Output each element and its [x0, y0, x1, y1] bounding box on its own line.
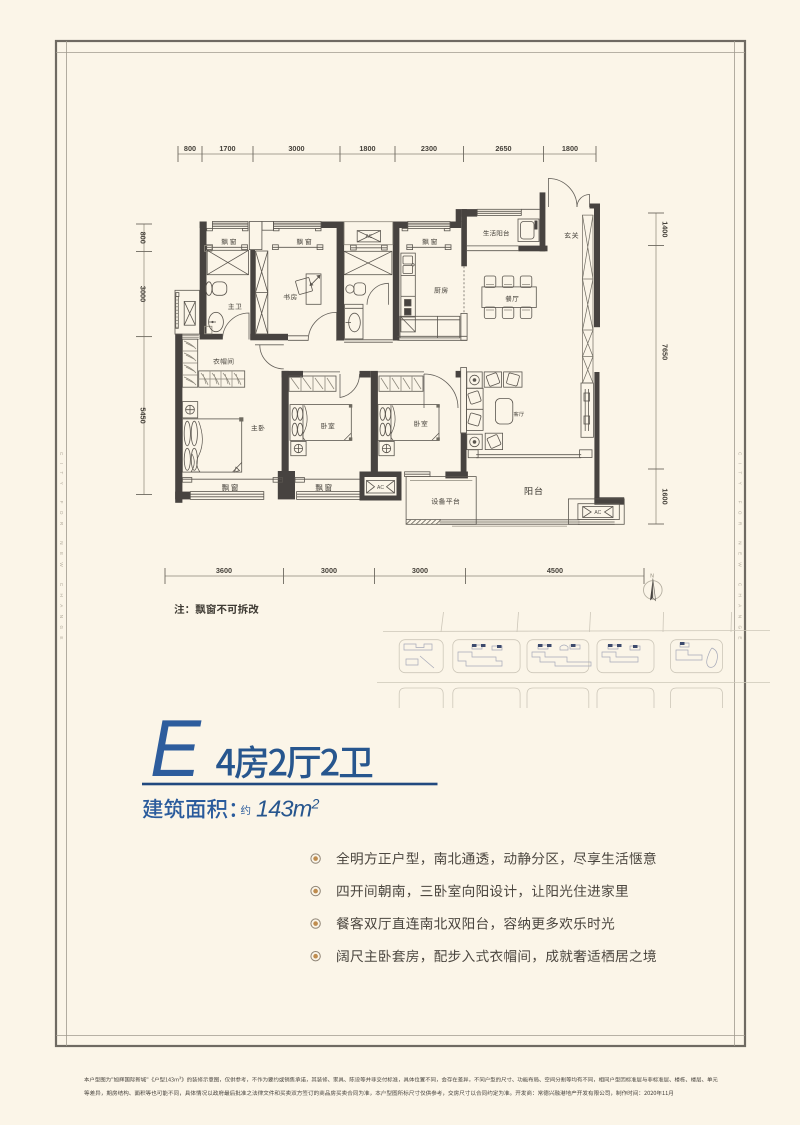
svg-text:2300: 2300 — [421, 144, 437, 153]
svg-text:1800: 1800 — [562, 144, 578, 153]
svg-text:1600: 1600 — [661, 488, 670, 504]
svg-text:3000: 3000 — [412, 566, 428, 575]
svg-text:AC: AC — [377, 485, 384, 491]
svg-text:N: N — [650, 574, 654, 580]
svg-text:CITY FOR NEW CHANGE: CITY FOR NEW CHANGE — [738, 452, 743, 647]
svg-text:CITY FOR NEW CHANGE: CITY FOR NEW CHANGE — [59, 452, 64, 647]
svg-text:AC: AC — [365, 234, 372, 240]
svg-text:3600: 3600 — [216, 566, 232, 575]
svg-text:1700: 1700 — [219, 144, 235, 153]
svg-text:E: E — [150, 703, 202, 794]
svg-text:5450: 5450 — [139, 407, 148, 423]
svg-text:800: 800 — [184, 144, 196, 153]
svg-text:4500: 4500 — [547, 566, 563, 575]
svg-text:2650: 2650 — [495, 144, 511, 153]
svg-text:1800: 1800 — [359, 144, 375, 153]
svg-text:3000: 3000 — [288, 144, 304, 153]
svg-text:800: 800 — [139, 232, 148, 244]
svg-text:3000: 3000 — [139, 286, 148, 302]
svg-text:3000: 3000 — [321, 566, 337, 575]
svg-text:7650: 7650 — [661, 344, 670, 360]
svg-text:1400: 1400 — [661, 221, 670, 237]
svg-text:143m2: 143m2 — [256, 796, 320, 822]
svg-text:AC: AC — [594, 510, 601, 516]
